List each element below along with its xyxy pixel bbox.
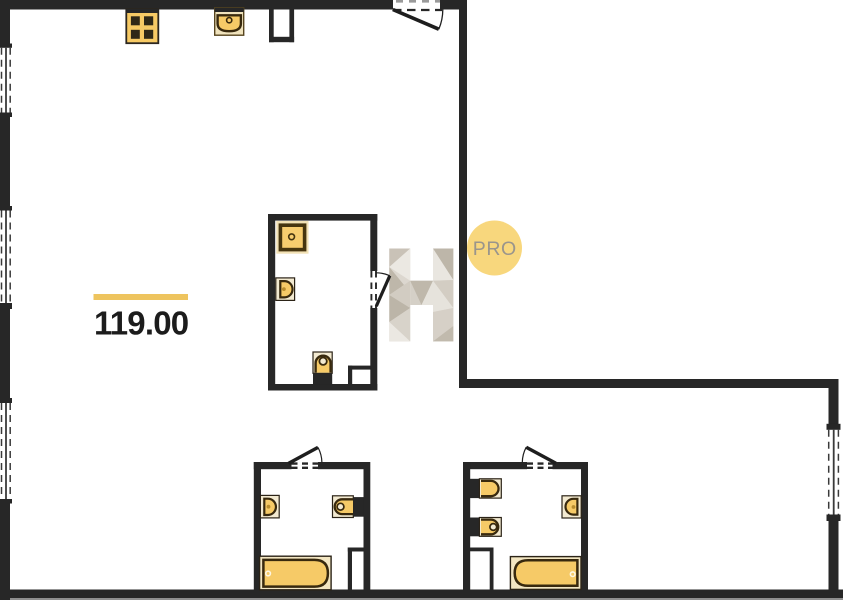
svg-text:PRO: PRO xyxy=(473,238,517,260)
svg-text:119.00: 119.00 xyxy=(94,305,188,342)
